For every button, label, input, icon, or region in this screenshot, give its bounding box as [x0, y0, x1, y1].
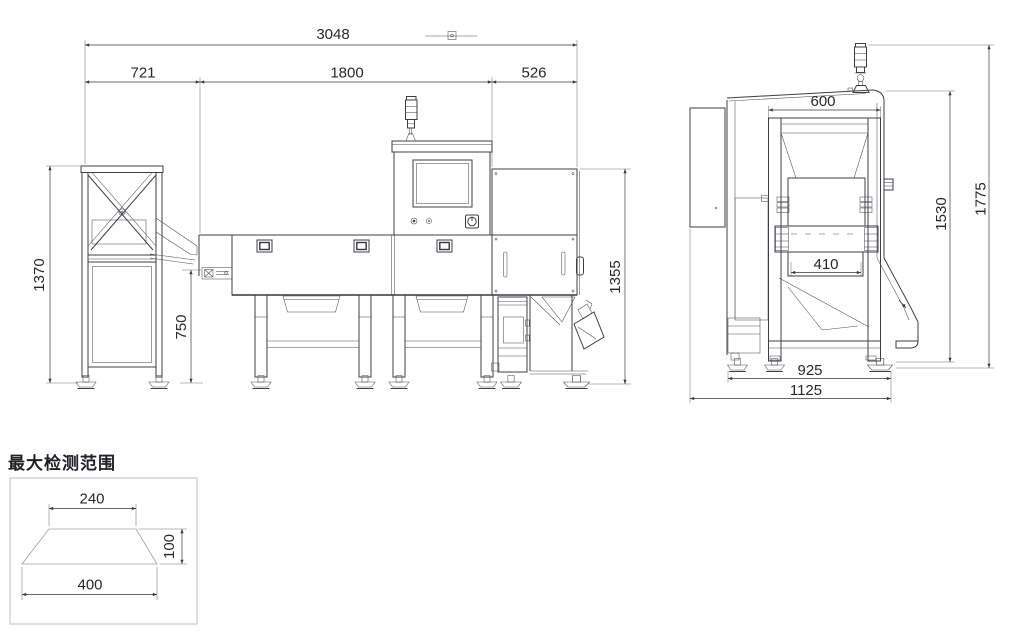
front-extension-lines: [46, 40, 631, 384]
dim-label-detection-bottom-width: 400: [77, 577, 102, 594]
detection-trapezoid: [22, 529, 157, 564]
reject-chute-front: [574, 300, 604, 349]
inspection-window: [437, 240, 452, 252]
signal-tower-front: [406, 97, 418, 142]
technical-drawing-canvas: 3048 721 1800 526 1370 750 1355: [0, 0, 1013, 643]
power-button: [466, 215, 479, 228]
vent-box: [492, 297, 530, 372]
guide-brackets: [777, 197, 872, 213]
latch-icon: [884, 179, 893, 190]
drip-trays: [283, 296, 468, 312]
gantry-frame: [769, 118, 881, 361]
dim-label-belt-height: 750: [173, 314, 190, 339]
detection-range-title: 最大检测范围: [8, 453, 116, 473]
dim-label-overall-depth: 1125: [790, 382, 822, 399]
front-view: 3048 721 1800 526 1370 750 1355: [31, 26, 631, 389]
dim-label-body-length: 1800: [330, 65, 363, 82]
dim-label-frame-height: 1530: [933, 197, 950, 230]
reject-chute-side: [877, 258, 918, 348]
inspection-window: [354, 240, 369, 252]
drawing-page: 3048 721 1800 526 1370 750 1355: [0, 0, 1013, 643]
dim-label-detection-top-width: 240: [79, 491, 104, 508]
dim-label-body-height: 1355: [607, 260, 624, 293]
dim-label-infeed-length: 721: [130, 65, 155, 82]
dim-label-overall-height: 1775: [973, 182, 990, 215]
front-dimension-lines: [50, 45, 625, 384]
machine-legs: [255, 295, 493, 377]
dim-label-stand-height: 1370: [31, 258, 48, 291]
feeder-stand: [76, 166, 169, 389]
internal-chute: [779, 278, 869, 330]
flow-arrow-icon: [899, 300, 906, 308]
dim-label-detection-height: 100: [161, 534, 178, 559]
vent-slot: [504, 252, 508, 277]
door-handle: [577, 257, 584, 275]
side-console-panel: [690, 100, 769, 360]
touchscreen: [413, 160, 472, 207]
lifting-point-symbol: [425, 32, 477, 40]
dim-label-outfeed-length: 526: [521, 65, 546, 82]
signal-tower-side: [848, 44, 869, 93]
infeed-sensor-unit: [202, 268, 232, 280]
control-cabinet: [392, 97, 492, 236]
side-hopper: [777, 133, 872, 226]
base-frame: [769, 341, 881, 360]
dim-label-belt-width: 410: [813, 256, 838, 273]
vent-slot: [562, 252, 566, 275]
dim-label-foot-span: 925: [797, 362, 822, 379]
outfeed-cabinet: [492, 169, 605, 389]
conveyor-body: [199, 235, 577, 389]
side-view: 600 410 925 1125 1530 1775: [690, 44, 994, 404]
detection-range-panel: 最大检测范围 240 100 400: [8, 453, 197, 624]
louver-grid: [504, 317, 524, 343]
outfeed-frame: [530, 295, 588, 374]
infeed-chute: [150, 218, 197, 264]
inspection-window: [257, 240, 272, 252]
dim-label-overall-length: 3048: [316, 26, 349, 43]
